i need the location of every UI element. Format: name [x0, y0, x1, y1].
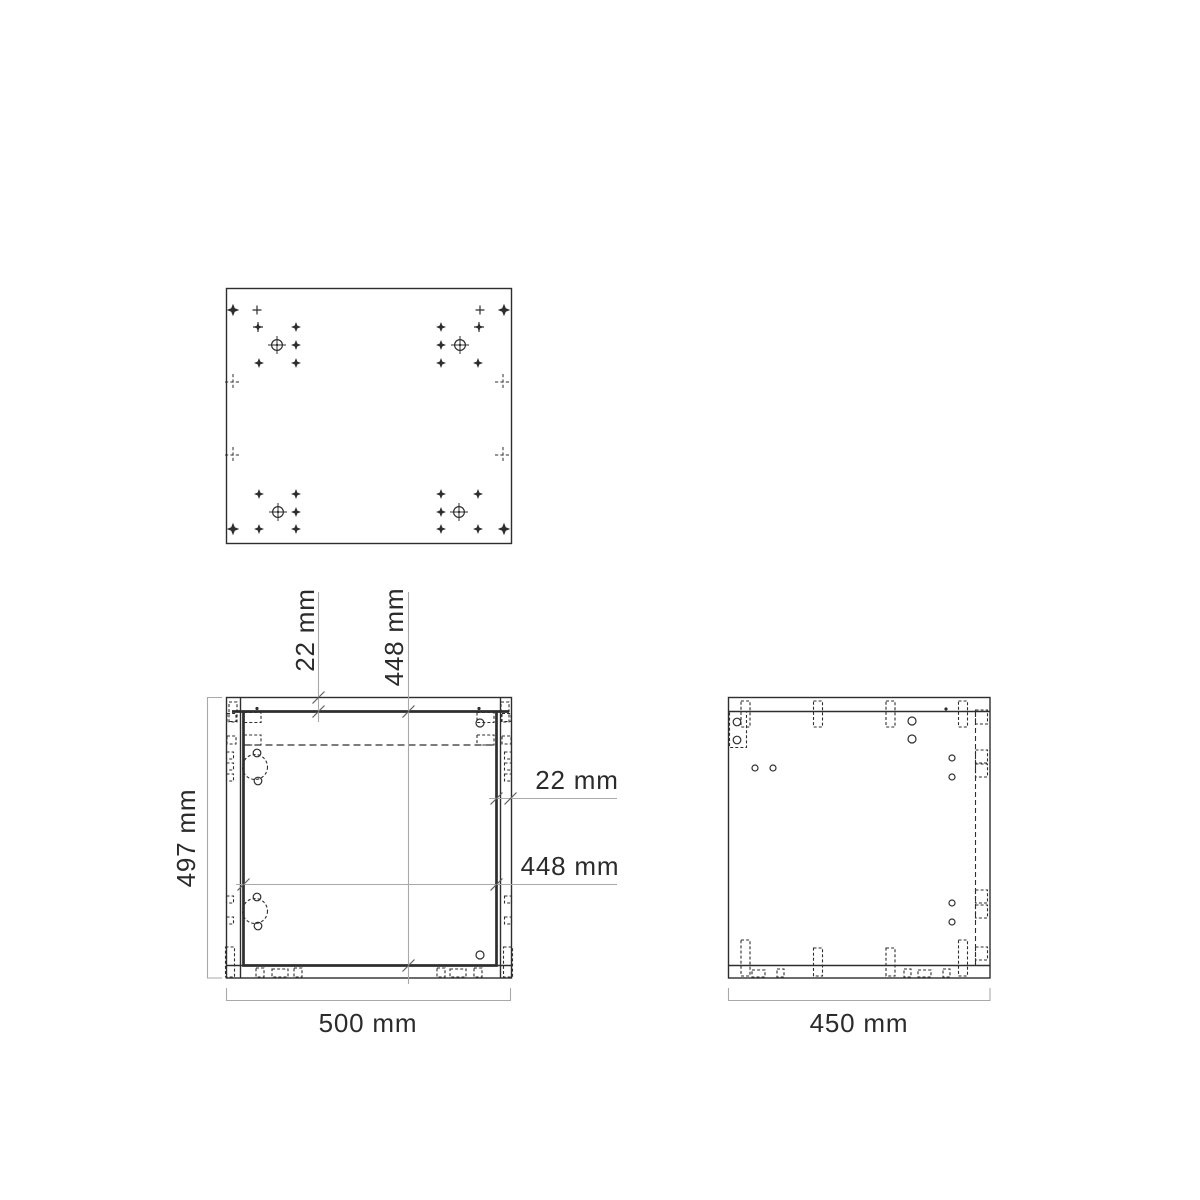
top-view [225, 289, 512, 544]
dim-label-front-height: 497 mm [171, 789, 201, 888]
front-view [226, 698, 513, 979]
dim-label-front-width: 500 mm [319, 1008, 418, 1038]
side-outline [729, 698, 991, 979]
dim-bracket-front-height [208, 698, 223, 979]
dim-label-side-depth: 450 mm [810, 1008, 909, 1038]
front-outline [227, 698, 512, 979]
top-panel-outline [227, 289, 512, 544]
dim-label-inner-height: 448 mm [379, 588, 409, 687]
dim-label-inner-width: 448 mm [521, 851, 620, 881]
dim-bracket-front-width [227, 988, 511, 1001]
technical-drawing: 497 mm 500 mm 450 mm 22 mm 448 mm 22 mm … [0, 0, 1200, 1200]
side-view [729, 698, 991, 979]
dim-label-top-thickness: 22 mm [290, 588, 320, 671]
dim-bracket-side-depth [729, 988, 991, 1001]
dim-label-side-thickness: 22 mm [535, 765, 618, 795]
